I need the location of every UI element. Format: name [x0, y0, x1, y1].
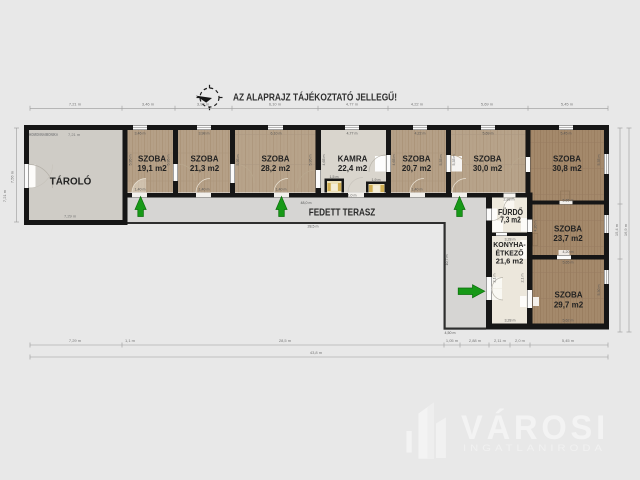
svg-text:1,40 m: 1,40 m — [276, 188, 287, 192]
svg-text:4,77 m: 4,77 m — [346, 101, 359, 106]
svg-text:SZOBA: SZOBA — [138, 154, 166, 163]
svg-text:VÁROSI: VÁROSI — [461, 409, 609, 447]
svg-text:1,40 m: 1,40 m — [412, 188, 423, 192]
svg-text:15,4 m: 15,4 m — [614, 223, 619, 236]
svg-text:30,0 m2: 30,0 m2 — [473, 164, 503, 173]
svg-text:7,56 m: 7,56 m — [10, 170, 15, 183]
svg-text:SZOBA: SZOBA — [553, 154, 581, 163]
svg-text:4,65 m: 4,65 m — [392, 155, 396, 166]
svg-text:5,45 m: 5,45 m — [562, 338, 575, 343]
svg-text:7,21 m: 7,21 m — [2, 189, 7, 202]
svg-text:5,65 m: 5,65 m — [563, 199, 574, 203]
svg-text:4,65 m: 4,65 m — [322, 155, 326, 166]
svg-text:16,9 m: 16,9 m — [623, 223, 628, 236]
svg-text:28,2 m2: 28,2 m2 — [261, 164, 291, 173]
svg-text:1,05 m: 1,05 m — [446, 338, 459, 343]
svg-text:5,35 m: 5,35 m — [452, 155, 456, 166]
svg-text:43,8 m: 43,8 m — [310, 350, 323, 355]
svg-text:4,20 m: 4,20 m — [563, 250, 574, 254]
svg-text:2,88 m: 2,88 m — [469, 338, 482, 343]
svg-text:23,7 m2: 23,7 m2 — [553, 234, 583, 243]
svg-text:1,5 m: 1,5 m — [330, 175, 339, 179]
svg-text:7,21 m: 7,21 m — [68, 132, 81, 137]
svg-text:2,1 m: 2,1 m — [493, 274, 497, 283]
svg-text:29,7 m2: 29,7 m2 — [554, 300, 584, 309]
svg-text:6,10 m: 6,10 m — [271, 132, 282, 136]
svg-text:5,62 m: 5,62 m — [563, 319, 574, 323]
svg-text:2,0 m: 2,0 m — [515, 338, 526, 343]
svg-text:2,1 m: 2,1 m — [521, 274, 525, 283]
svg-text:5,69 m: 5,69 m — [481, 101, 494, 106]
svg-text:7,29 m: 7,29 m — [69, 338, 82, 343]
svg-text:20,7 m2: 20,7 m2 — [402, 164, 432, 173]
svg-text:30,8 m2: 30,8 m2 — [552, 164, 582, 173]
svg-text:6,10 m: 6,10 m — [269, 101, 282, 106]
svg-text:5,45 m: 5,45 m — [561, 101, 574, 106]
svg-text:28,5 m: 28,5 m — [279, 338, 292, 343]
svg-text:7,21 m: 7,21 m — [69, 101, 82, 106]
svg-text:22,4 m2: 22,4 m2 — [338, 164, 368, 173]
svg-text:5,45 m: 5,45 m — [561, 132, 572, 136]
svg-text:48,0 m: 48,0 m — [301, 201, 312, 205]
svg-text:28,5 m: 28,5 m — [308, 225, 319, 229]
svg-text:INGATLANIRODA: INGATLANIRODA — [463, 443, 606, 454]
svg-text:5,35 m: 5,35 m — [439, 155, 443, 166]
svg-text:5,35 m: 5,35 m — [597, 155, 601, 166]
svg-text:3,46 m: 3,46 m — [135, 132, 146, 136]
svg-text:2,11 m: 2,11 m — [494, 338, 507, 343]
svg-text:SZOBA: SZOBA — [474, 154, 502, 163]
svg-text:1,9 m: 1,9 m — [372, 178, 381, 182]
svg-text:3,28 m: 3,28 m — [505, 238, 516, 242]
svg-text:5,95 m: 5,95 m — [129, 155, 133, 166]
svg-text:3,98 m: 3,98 m — [199, 132, 210, 136]
svg-text:10,7 m: 10,7 m — [445, 255, 449, 266]
svg-text:SZOBA: SZOBA — [555, 291, 583, 300]
svg-text:5,95 m: 5,95 m — [236, 155, 240, 166]
svg-text:4,77 m: 4,77 m — [347, 132, 358, 136]
svg-text:5,95 m: 5,95 m — [167, 155, 171, 166]
svg-text:4,22 m: 4,22 m — [415, 132, 426, 136]
svg-text:1,1 m: 1,1 m — [125, 338, 136, 343]
svg-text:TÁROLÓ: TÁROLÓ — [50, 174, 92, 187]
svg-text:5,95 m: 5,95 m — [309, 155, 313, 166]
svg-text:2,88 m: 2,88 m — [504, 198, 515, 202]
svg-text:5,69 m: 5,69 m — [483, 132, 494, 136]
svg-text:4,20 m: 4,20 m — [534, 221, 538, 232]
svg-text:1,40 m: 1,40 m — [199, 188, 210, 192]
svg-text:SZOBA: SZOBA — [191, 154, 219, 163]
svg-text:KAMRA: KAMRA — [338, 154, 368, 163]
svg-text:4,50 m: 4,50 m — [445, 331, 456, 335]
svg-text:7,29 m: 7,29 m — [64, 214, 77, 219]
svg-text:3,98 m: 3,98 m — [197, 101, 210, 106]
svg-text:FEDETT TERASZ: FEDETT TERASZ — [309, 207, 376, 218]
svg-text:AZ ALAPRAJZ TÁJÉKOZTATÓ JELLEG: AZ ALAPRAJZ TÁJÉKOZTATÓ JELLEGŰ! — [233, 91, 397, 104]
svg-text:21,3 m2: 21,3 m2 — [190, 164, 220, 173]
svg-text:5,65 m: 5,65 m — [563, 261, 574, 265]
svg-text:4,22 m: 4,22 m — [411, 101, 424, 106]
svg-text:1,40 m: 1,40 m — [135, 188, 146, 192]
svg-text:HOMONNAIMONIKA: HOMONNAIMONIKA — [29, 132, 58, 137]
svg-text:1,0 m: 1,0 m — [348, 193, 357, 197]
svg-text:21,6 m2: 21,6 m2 — [496, 257, 524, 266]
svg-text:3,46 m: 3,46 m — [142, 101, 155, 106]
svg-text:SZOBA: SZOBA — [554, 225, 582, 234]
svg-text:3,28 m: 3,28 m — [505, 319, 516, 323]
svg-text:5,30 m: 5,30 m — [597, 285, 601, 296]
svg-text:SZOBA: SZOBA — [403, 154, 431, 163]
svg-text:19,1 m2: 19,1 m2 — [137, 164, 167, 173]
svg-text:SZOBA: SZOBA — [262, 154, 290, 163]
svg-text:7,3 m2: 7,3 m2 — [500, 216, 521, 225]
